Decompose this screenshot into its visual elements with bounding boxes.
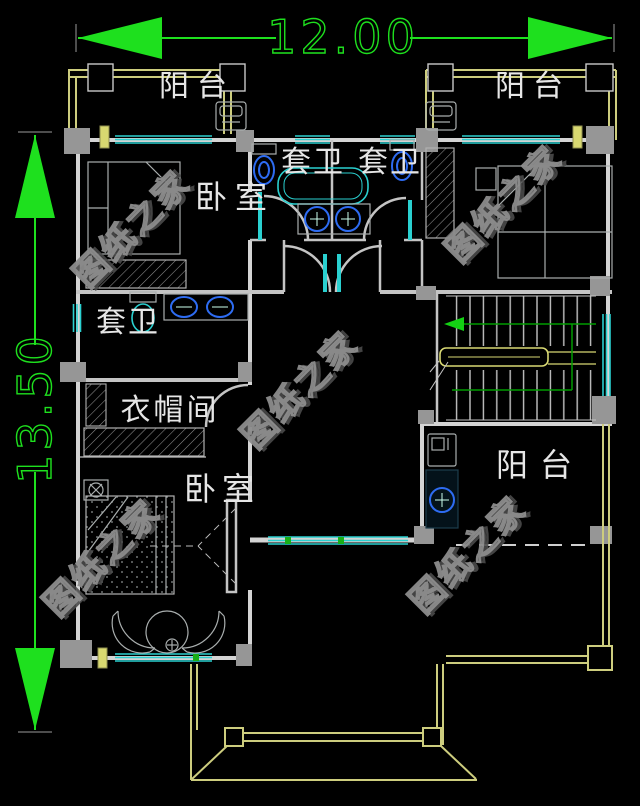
label-ensuite-left: 套卫 bbox=[96, 305, 160, 340]
watermark: 图纸之家 图纸之家 bbox=[438, 136, 575, 273]
label-ensuite-center-left: 套卫 bbox=[281, 145, 345, 180]
stairs bbox=[430, 296, 596, 420]
dimension-left-label: 13.50 bbox=[8, 332, 62, 484]
floor-plan-canvas: 12.00 13.50 bbox=[0, 0, 640, 806]
stair-treads-upper bbox=[446, 296, 596, 346]
window-tick bbox=[338, 537, 344, 544]
floor-plan-drawing: 12.00 13.50 bbox=[0, 0, 640, 806]
bedroom-sliding-door bbox=[227, 500, 236, 592]
cloakroom-cabinet-left bbox=[86, 384, 106, 426]
svg-text:图纸之家: 图纸之家 bbox=[234, 324, 367, 457]
dimension-top: 12.00 bbox=[76, 10, 614, 64]
label-bedroom-top: 卧室 bbox=[195, 178, 275, 216]
balcony-sink bbox=[426, 470, 458, 528]
sinks-center bbox=[298, 204, 370, 234]
wardrobe-top-right bbox=[426, 148, 454, 238]
window-tick bbox=[193, 654, 199, 661]
ac-unit-right bbox=[426, 102, 456, 130]
label-bedroom-bottom: 卧室 bbox=[184, 470, 260, 508]
dimension-left: 13.50 bbox=[8, 132, 62, 732]
stair-treads-lower bbox=[446, 370, 596, 420]
label-balcony-top-left: 阳台 bbox=[159, 69, 235, 104]
dim-arrow-down bbox=[15, 648, 55, 730]
entrance-porch bbox=[191, 664, 477, 780]
double-door-arc-right bbox=[336, 246, 382, 292]
label-cloakroom: 衣帽间 bbox=[121, 393, 220, 428]
dim-arrow-up bbox=[15, 135, 55, 218]
label-balcony-bottom-right: 阳台 bbox=[496, 446, 584, 484]
svg-text:图纸之家: 图纸之家 bbox=[438, 138, 571, 271]
sinks-left-ensuite bbox=[164, 294, 248, 320]
dimension-top-label: 12.00 bbox=[267, 10, 419, 64]
dim-arrow-right bbox=[528, 17, 612, 59]
chairs-and-table bbox=[112, 611, 225, 653]
window-tick bbox=[285, 537, 291, 544]
label-balcony-top-right: 阳台 bbox=[495, 69, 571, 104]
dim-arrow-left bbox=[78, 17, 162, 59]
label-ensuite-center-right: 套卫 bbox=[358, 145, 422, 180]
washing-machine bbox=[428, 434, 456, 466]
cloakroom-wardrobe bbox=[84, 428, 204, 456]
watermark: 图纸之家 图纸之家 bbox=[234, 322, 371, 459]
